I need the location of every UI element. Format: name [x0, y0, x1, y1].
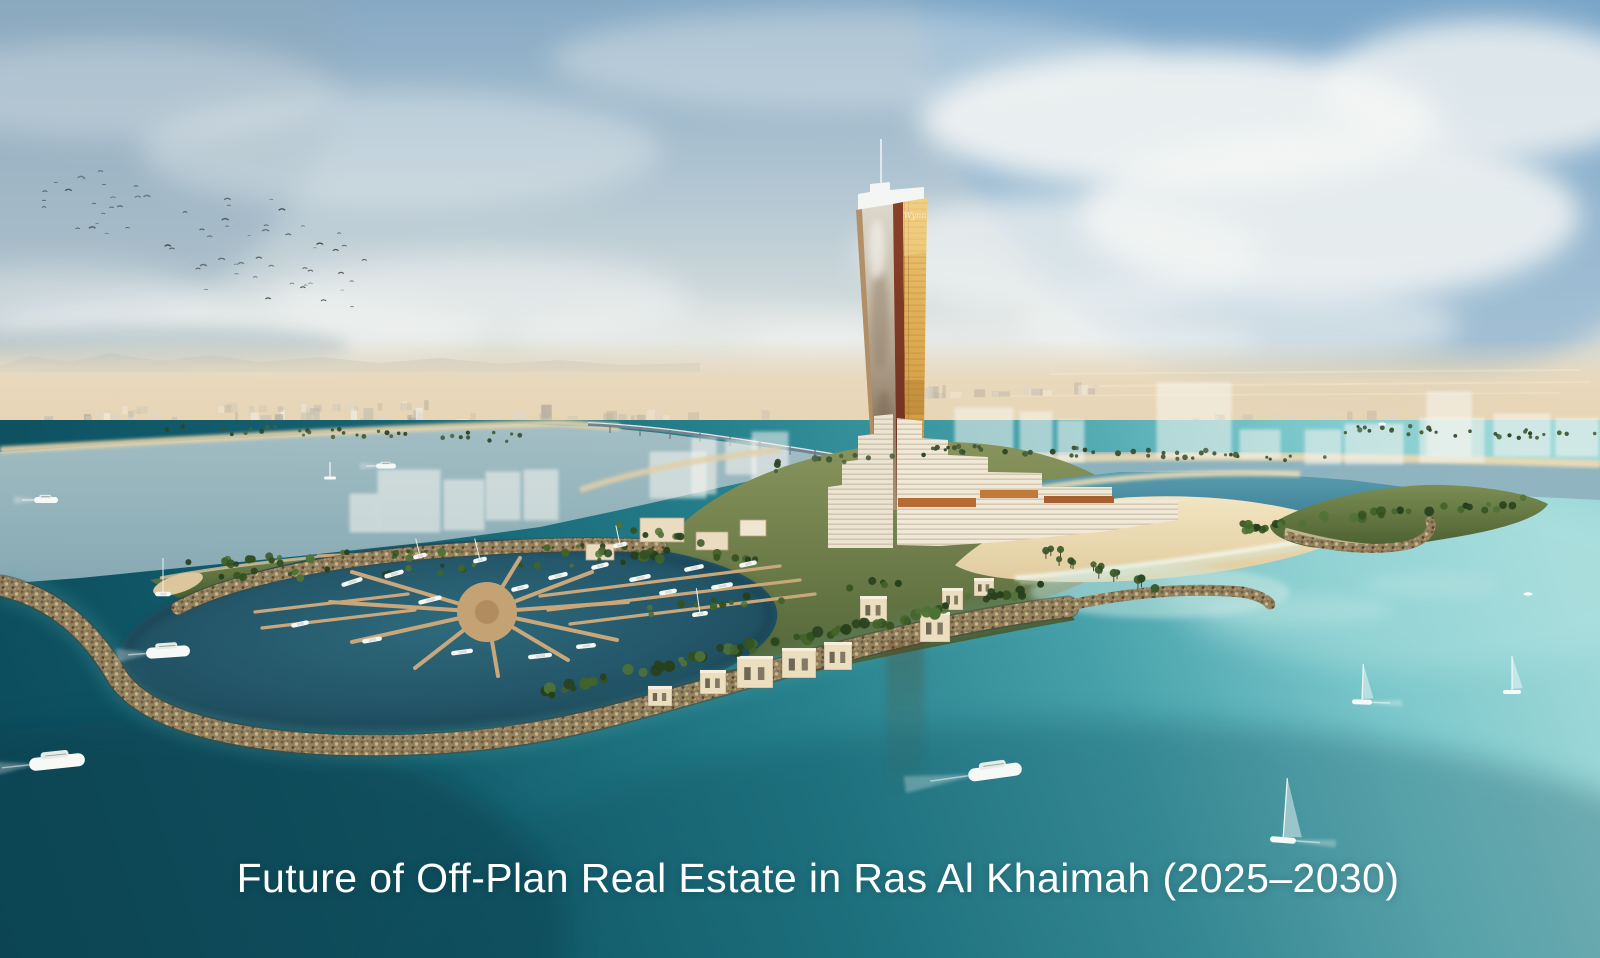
tree	[1069, 453, 1073, 457]
tree	[397, 432, 401, 436]
tree	[269, 557, 275, 563]
tree	[466, 431, 470, 435]
tree	[1428, 428, 1431, 431]
tree	[872, 619, 882, 629]
palm-tree	[1056, 556, 1062, 562]
tree	[1468, 429, 1472, 433]
tree	[1523, 430, 1527, 434]
tree	[277, 555, 282, 560]
facade-highlight	[869, 220, 885, 280]
tree	[1269, 458, 1272, 461]
tree	[1363, 426, 1367, 430]
tree	[944, 448, 947, 451]
tree	[881, 581, 888, 588]
tree	[1466, 504, 1473, 511]
podium-canopy	[980, 490, 1038, 498]
tree	[1002, 449, 1008, 455]
tree	[1146, 448, 1151, 453]
tree	[859, 618, 870, 629]
tree	[1391, 508, 1397, 514]
tree	[677, 600, 685, 608]
outbuilding	[740, 520, 766, 536]
tree	[1517, 436, 1521, 440]
tree	[655, 554, 665, 564]
tree	[942, 602, 949, 609]
tree	[1368, 429, 1372, 433]
tower-dark-band	[904, 380, 924, 415]
tree	[959, 449, 965, 455]
city-building	[1024, 385, 1031, 396]
tree	[680, 660, 687, 667]
small-boat	[1524, 592, 1533, 596]
tree	[1435, 431, 1438, 434]
facade-cloud-reflection	[871, 270, 889, 370]
tree	[710, 603, 717, 610]
tree	[663, 547, 670, 554]
tree	[1244, 520, 1253, 529]
tree	[638, 668, 647, 677]
tree	[1396, 507, 1404, 515]
tree	[1115, 450, 1121, 456]
tree	[1182, 455, 1188, 461]
tree	[306, 554, 315, 563]
tree	[640, 550, 650, 560]
city-building	[122, 406, 128, 414]
tree	[1509, 502, 1517, 510]
tree	[307, 430, 311, 434]
ghost-building	[378, 470, 440, 532]
city-building	[333, 403, 338, 411]
tree	[647, 605, 653, 611]
tree	[1265, 456, 1268, 459]
ghost-building	[524, 470, 558, 520]
city-building	[401, 403, 412, 410]
palm-tree	[1048, 546, 1055, 553]
tree	[1091, 450, 1095, 454]
tree	[251, 568, 258, 575]
tree	[1481, 507, 1488, 514]
tree	[793, 634, 799, 640]
tree	[890, 453, 895, 458]
tree	[1528, 431, 1532, 435]
city-building	[259, 406, 267, 413]
tree	[711, 597, 717, 603]
tree	[842, 460, 847, 465]
tree	[459, 435, 463, 439]
tree	[492, 431, 496, 435]
tree	[392, 550, 399, 557]
city-building	[1347, 412, 1352, 421]
tree	[656, 662, 666, 672]
ghost-building	[1345, 424, 1403, 464]
tree	[331, 435, 335, 439]
tree	[1299, 520, 1307, 528]
tree	[1175, 451, 1179, 455]
tree	[1440, 502, 1448, 510]
tree	[185, 559, 191, 565]
villa	[700, 670, 726, 694]
tree	[1565, 432, 1569, 436]
tree	[1406, 432, 1410, 436]
hero-image: Wynn Future of Off-Plan Real Estate in R…	[0, 0, 1600, 958]
tree	[620, 560, 626, 566]
tree	[406, 549, 410, 553]
tree	[812, 626, 823, 637]
tree	[1131, 449, 1137, 455]
palm-tree	[1110, 569, 1118, 577]
boat-wake	[1372, 702, 1390, 703]
tree	[165, 427, 170, 432]
podium-canopy	[1044, 496, 1114, 503]
tree	[1083, 448, 1088, 453]
tree	[1380, 425, 1385, 430]
ghost-building	[692, 438, 716, 494]
tree	[1146, 454, 1150, 458]
tree	[956, 444, 961, 449]
tree	[840, 626, 847, 633]
tree	[1229, 453, 1233, 457]
tree	[600, 673, 607, 680]
tree	[230, 432, 234, 436]
tree	[580, 543, 584, 547]
ghost-building	[444, 480, 484, 530]
tree	[1072, 446, 1077, 451]
tree	[437, 570, 444, 577]
tree	[561, 549, 569, 557]
tree	[337, 427, 342, 432]
tree	[579, 678, 591, 690]
tree	[853, 453, 858, 458]
tree	[534, 562, 541, 569]
tree	[324, 566, 330, 572]
tree	[362, 434, 367, 439]
tree	[288, 572, 293, 577]
tree	[466, 435, 470, 439]
city-building	[1078, 385, 1088, 395]
tree	[1389, 428, 1394, 433]
tree	[987, 588, 995, 596]
tree	[895, 580, 902, 587]
tree	[1162, 451, 1166, 455]
tree	[1408, 424, 1412, 428]
tree	[265, 425, 269, 429]
city-building	[278, 407, 284, 412]
tree	[866, 455, 871, 460]
tree	[1018, 592, 1026, 600]
tree	[1358, 511, 1367, 520]
tree	[1349, 513, 1359, 523]
tree	[1289, 455, 1292, 458]
tree	[1419, 430, 1423, 434]
city-building	[301, 404, 306, 412]
tree	[719, 601, 726, 608]
tree	[1277, 522, 1283, 528]
tree	[778, 597, 785, 604]
tree	[997, 591, 1004, 598]
tree	[1493, 506, 1500, 513]
tree	[576, 544, 580, 548]
city-building	[1042, 390, 1053, 395]
villa	[824, 642, 852, 670]
tower-reflection	[886, 640, 924, 795]
tree	[675, 533, 682, 540]
tree	[277, 559, 284, 566]
city-building	[1321, 414, 1332, 421]
tree	[868, 577, 876, 585]
tree	[564, 679, 575, 690]
tree	[915, 608, 921, 614]
sandbar	[1360, 573, 1500, 597]
tree	[245, 555, 253, 563]
tree	[886, 622, 894, 630]
tree	[623, 664, 634, 675]
tree	[455, 549, 460, 554]
tree	[1520, 494, 1527, 501]
tree	[1529, 435, 1533, 439]
page-title: Future of Off-Plan Real Estate in Ras Al…	[237, 855, 1400, 902]
tree	[377, 430, 380, 433]
tree	[356, 434, 359, 437]
tree	[1557, 430, 1562, 435]
tree	[697, 539, 705, 547]
tree	[900, 615, 910, 625]
tree	[259, 429, 264, 434]
tree	[846, 584, 853, 591]
tree	[737, 644, 744, 651]
tree	[921, 606, 933, 618]
tree	[729, 600, 734, 605]
tree	[180, 424, 185, 429]
tree	[826, 456, 832, 462]
palm-tree	[1067, 557, 1074, 564]
tree	[458, 565, 465, 572]
tree	[385, 430, 390, 435]
tree	[1424, 507, 1434, 517]
ghost-building	[350, 494, 378, 532]
city-building	[924, 387, 933, 399]
tree	[973, 444, 977, 448]
tree	[1507, 433, 1511, 437]
palm-tree	[1090, 561, 1096, 567]
tree	[519, 563, 524, 568]
tree	[732, 554, 740, 562]
tree	[296, 574, 304, 582]
tree	[1497, 434, 1502, 439]
tree	[1191, 456, 1194, 459]
tree	[405, 565, 411, 571]
tower-top-glow	[903, 198, 927, 256]
tree	[344, 549, 350, 555]
sandbar	[1205, 594, 1395, 626]
tree	[716, 644, 724, 652]
tree	[487, 438, 491, 442]
villa	[782, 648, 816, 678]
tree	[1499, 501, 1507, 509]
tree	[1161, 454, 1166, 459]
tree	[239, 573, 247, 581]
tree	[812, 455, 819, 462]
tree	[1212, 451, 1216, 455]
ghost-building	[1556, 418, 1598, 456]
tree	[1378, 512, 1385, 519]
tree	[1406, 508, 1412, 514]
city-building	[1367, 411, 1377, 420]
tree	[713, 554, 720, 561]
tower-logo-text: Wynn	[904, 211, 927, 220]
tree	[979, 447, 984, 452]
tree	[946, 446, 950, 450]
tree	[1323, 455, 1327, 459]
ghost-building	[1157, 383, 1231, 457]
tree	[1254, 524, 1261, 531]
tree	[249, 427, 253, 431]
tree	[1283, 458, 1287, 462]
ghost-building	[1427, 392, 1471, 456]
tree	[1175, 457, 1179, 461]
tree	[389, 434, 393, 438]
tree	[743, 638, 755, 650]
tree	[630, 527, 637, 534]
tree	[597, 558, 601, 562]
tree	[1023, 451, 1029, 457]
city-building	[974, 389, 985, 397]
tree	[440, 564, 444, 568]
villa	[737, 656, 773, 688]
tree	[1075, 454, 1078, 457]
tree	[544, 544, 551, 551]
tree	[222, 428, 225, 431]
tree	[1357, 427, 1362, 432]
tree	[450, 434, 454, 438]
city-building	[218, 407, 225, 413]
tree	[510, 432, 513, 435]
city-building	[1088, 388, 1096, 394]
tree	[1319, 511, 1329, 521]
tree	[604, 549, 612, 557]
tree	[219, 574, 225, 580]
city-building	[1389, 412, 1397, 420]
city-building	[950, 392, 961, 398]
tree	[440, 435, 445, 440]
city-building	[992, 391, 1001, 397]
tree	[1224, 453, 1227, 456]
city-building	[137, 406, 148, 414]
tree	[1050, 449, 1056, 455]
tree	[1593, 432, 1597, 436]
palm-tree	[1057, 546, 1064, 553]
tree	[616, 522, 623, 529]
tree	[839, 454, 843, 458]
tree	[517, 433, 522, 438]
tree	[1344, 431, 1347, 434]
podium-canopy	[898, 498, 976, 507]
city-building	[424, 400, 429, 410]
ghost-building	[1494, 414, 1550, 456]
tree	[1037, 581, 1044, 588]
city-building	[762, 410, 770, 419]
palm-tree	[1137, 574, 1145, 582]
tree	[1233, 452, 1239, 458]
ghost-building	[486, 472, 520, 520]
tree	[648, 612, 654, 618]
tree	[630, 551, 639, 560]
tree	[233, 561, 239, 567]
small-boat	[1378, 422, 1386, 425]
tree	[1542, 433, 1545, 436]
tree	[273, 425, 276, 428]
tree	[331, 428, 334, 431]
tree	[743, 592, 751, 600]
island-scene-svg: Wynn	[0, 0, 1600, 958]
tree	[1203, 448, 1208, 453]
tree	[1494, 432, 1498, 436]
city-building	[942, 385, 945, 398]
city-building	[1413, 413, 1420, 420]
city-building	[314, 405, 322, 412]
tree	[658, 532, 664, 538]
palm-tree	[1151, 584, 1160, 593]
tree	[293, 570, 298, 575]
tree	[403, 432, 407, 436]
tree	[964, 593, 971, 600]
tree	[695, 651, 706, 662]
tree	[934, 447, 938, 451]
tree	[741, 601, 748, 608]
ghost-building	[1240, 430, 1280, 458]
tree	[774, 469, 778, 473]
tree	[1535, 436, 1539, 440]
city-building	[224, 405, 231, 413]
tree	[405, 555, 413, 563]
tree	[244, 431, 248, 435]
palm-tree	[1098, 563, 1105, 570]
tree	[438, 548, 447, 557]
tree	[548, 692, 555, 699]
tree	[302, 434, 305, 437]
city-building	[345, 402, 357, 412]
tree	[1453, 434, 1457, 438]
tree	[1199, 451, 1204, 456]
tree	[775, 459, 781, 465]
tree	[1486, 502, 1491, 507]
tree	[921, 453, 926, 458]
tree	[570, 564, 574, 568]
tree	[595, 550, 603, 558]
city-building	[243, 408, 252, 412]
tree	[771, 637, 780, 646]
ghost-building	[1305, 430, 1341, 464]
tree	[642, 532, 648, 538]
tree	[342, 431, 346, 435]
tree	[505, 440, 508, 443]
villa	[648, 686, 672, 706]
city-building	[1031, 389, 1043, 396]
tree	[298, 429, 301, 432]
city-building	[378, 403, 383, 411]
tree	[1028, 450, 1033, 455]
